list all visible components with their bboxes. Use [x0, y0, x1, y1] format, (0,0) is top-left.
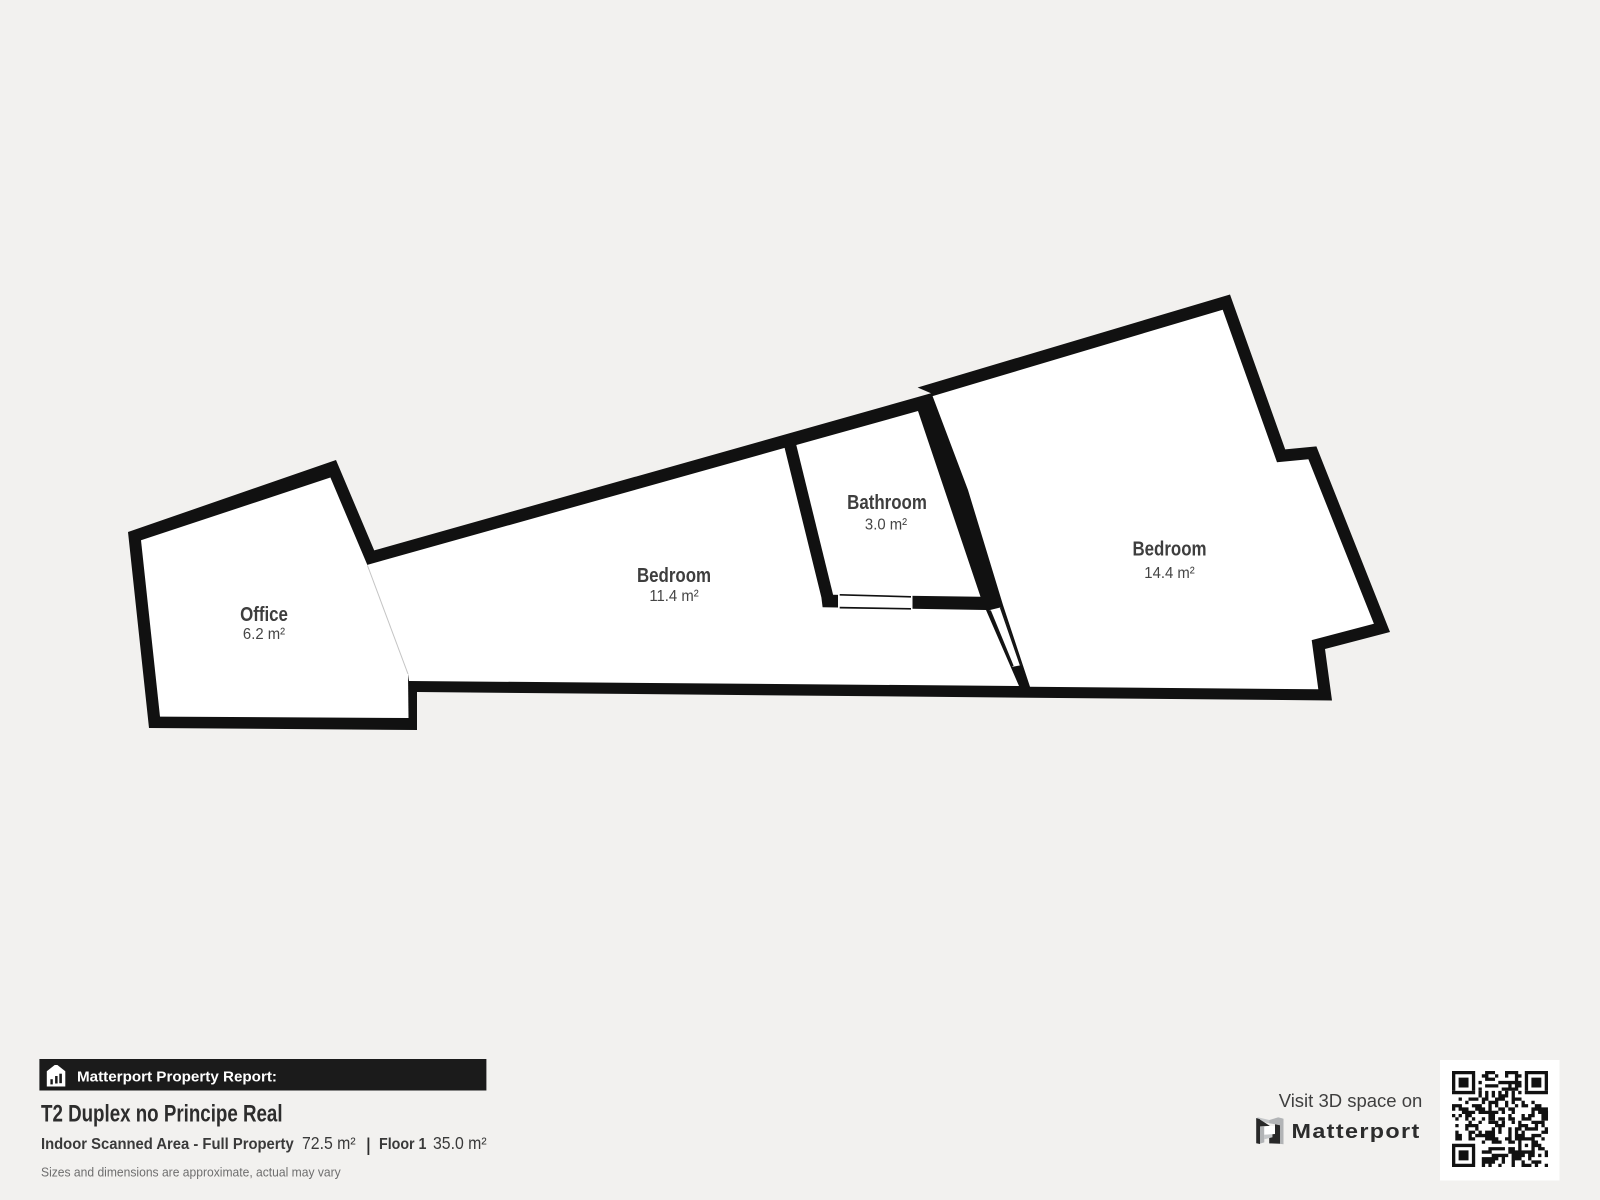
svg-text:3.0 m²: 3.0 m² [865, 516, 907, 534]
svg-text:Sizes and dimensions are appro: Sizes and dimensions are approximate, ac… [41, 1165, 341, 1179]
svg-text:72.5 m²: 72.5 m² [302, 1133, 356, 1153]
svg-text:Floor 1: Floor 1 [379, 1136, 426, 1153]
svg-text:Office: Office [240, 603, 288, 626]
svg-text:Matterport: Matterport [1292, 1119, 1421, 1142]
svg-text:Bedroom: Bedroom [1132, 537, 1206, 560]
svg-text:Matterport Property Report:: Matterport Property Report: [77, 1069, 277, 1086]
svg-text:11.4 m²: 11.4 m² [649, 588, 698, 606]
svg-text:Bedroom: Bedroom [637, 564, 711, 587]
svg-text:6.2 m²: 6.2 m² [243, 626, 285, 644]
svg-text:T2 Duplex no Principe Real: T2 Duplex no Principe Real [41, 1099, 283, 1127]
svg-text:Bathroom: Bathroom [847, 491, 927, 514]
svg-text:Visit 3D space on: Visit 3D space on [1279, 1090, 1423, 1111]
svg-text:14.4 m²: 14.4 m² [1144, 565, 1194, 583]
svg-text:35.0 m²: 35.0 m² [433, 1133, 487, 1153]
svg-text:Indoor Scanned Area - Full Pro: Indoor Scanned Area - Full Property [41, 1135, 294, 1153]
